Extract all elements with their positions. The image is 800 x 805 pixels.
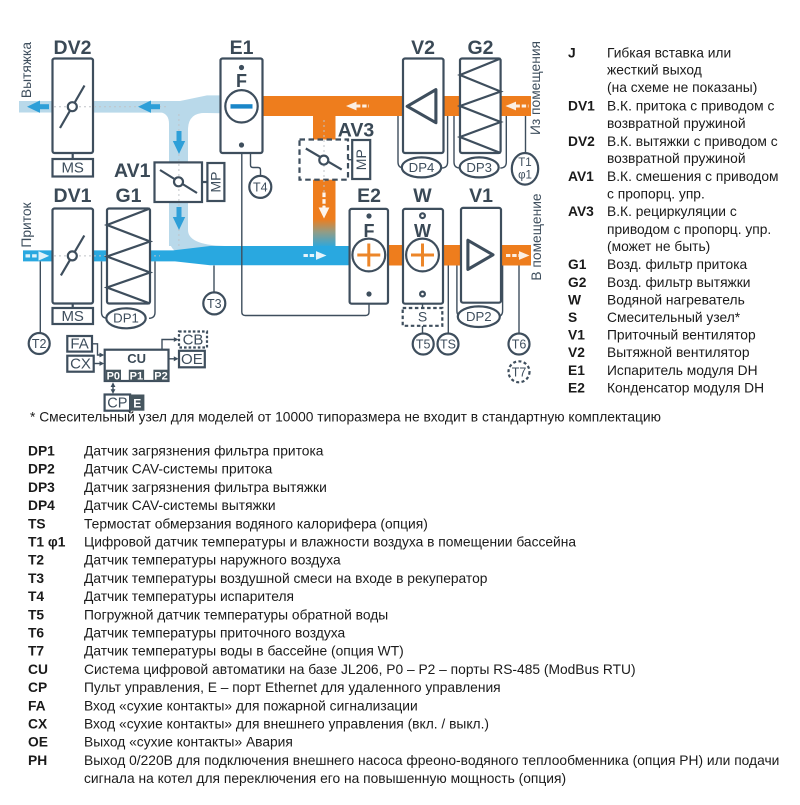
svg-text:T5: T5 <box>416 338 431 352</box>
svg-text:сигнала на котел для переключе: сигнала на котел для переключения его на… <box>84 771 566 786</box>
svg-text:CX: CX <box>28 717 48 732</box>
svg-text:Погружной датчик температуры о: Погружной датчик температуры обратной во… <box>84 607 388 622</box>
svg-text:MP: MP <box>208 172 224 193</box>
svg-text:T2: T2 <box>28 553 44 568</box>
svg-text:DP4: DP4 <box>409 160 435 175</box>
svg-text:DP4: DP4 <box>28 498 55 513</box>
svg-text:DP1: DP1 <box>113 311 139 326</box>
svg-text:T3: T3 <box>28 571 44 586</box>
svg-text:Гибкая вставка или: Гибкая вставка или <box>607 45 731 60</box>
svg-text:Датчик загрязнения фильтра при: Датчик загрязнения фильтра притока <box>84 444 324 459</box>
svg-text:V2: V2 <box>568 345 585 360</box>
svg-text:Выход 0/220В для подключения в: Выход 0/220В для подключения внешнего на… <box>84 753 779 768</box>
svg-text:В.К. притока с приводом с: В.К. притока с приводом с <box>607 99 774 114</box>
svg-text:приводом с пропорц. упр.: приводом с пропорц. упр. <box>607 222 771 237</box>
svg-text:E: E <box>133 396 141 410</box>
svg-text:TS: TS <box>440 338 456 352</box>
svg-text:OE: OE <box>181 351 203 368</box>
svg-text:Возд. фильтр вытяжки: Возд. фильтр вытяжки <box>607 275 751 290</box>
svg-text:P1: P1 <box>130 370 143 382</box>
svg-text:AV3: AV3 <box>568 204 594 219</box>
svg-text:T7: T7 <box>28 644 44 659</box>
svg-text:В.К. смешения с приводом: В.К. смешения с приводом <box>607 169 779 184</box>
svg-text:с пропорц. упр.: с пропорц. упр. <box>607 187 705 202</box>
svg-text:В помещение: В помещение <box>529 193 544 281</box>
svg-text:Пульт управления, Е – порт Eth: Пульт управления, Е – порт Ethernet для … <box>84 680 501 695</box>
svg-text:DV1: DV1 <box>568 99 595 114</box>
svg-text:Возд. фильтр притока: Возд. фильтр притока <box>607 257 748 272</box>
svg-text:P0: P0 <box>107 370 120 382</box>
svg-text:CP: CP <box>28 680 47 695</box>
svg-text:AV1: AV1 <box>114 160 151 182</box>
svg-text:T5: T5 <box>28 607 44 622</box>
svg-text:T2: T2 <box>32 337 47 351</box>
svg-text:S: S <box>418 309 427 325</box>
svg-text:возвратной пружиной: возвратной пружиной <box>607 151 746 166</box>
svg-text:W: W <box>568 292 582 307</box>
svg-text:φ1: φ1 <box>518 170 532 182</box>
svg-text:Датчик температуры воды в басс: Датчик температуры воды в бассейне (опци… <box>84 644 404 659</box>
svg-text:Испаритель модуля DH: Испаритель модуля DH <box>607 363 758 378</box>
svg-text:CB: CB <box>183 332 204 349</box>
svg-text:MP: MP <box>353 149 369 170</box>
svg-text:CU: CU <box>127 351 146 366</box>
svg-text:OE: OE <box>28 735 48 750</box>
svg-text:PH: PH <box>28 753 47 768</box>
svg-text:Смесительный узел*: Смесительный узел* <box>607 310 741 325</box>
svg-text:Приток: Приток <box>19 201 34 247</box>
svg-text:DV1: DV1 <box>54 185 92 207</box>
svg-text:V1: V1 <box>568 328 585 343</box>
svg-text:T6: T6 <box>512 338 527 352</box>
svg-text:(на схеме не показаны): (на схеме не показаны) <box>607 80 757 95</box>
svg-text:T6: T6 <box>28 626 44 641</box>
svg-text:AV3: AV3 <box>338 120 375 142</box>
svg-text:Датчик загрязнения фильтра выт: Датчик загрязнения фильтра вытяжки <box>84 480 327 495</box>
svg-text:жесткий выход: жесткий выход <box>607 63 702 78</box>
svg-text:TS: TS <box>28 516 46 531</box>
svg-text:E1: E1 <box>568 363 585 378</box>
svg-text:DP3: DP3 <box>466 160 492 175</box>
svg-text:AV1: AV1 <box>568 169 594 184</box>
svg-text:MS: MS <box>61 160 84 177</box>
svg-text:Вход «сухие контакты» для пожа: Вход «сухие контакты» для пожарной сигна… <box>84 698 418 713</box>
svg-text:CX: CX <box>70 356 91 373</box>
svg-text:G1: G1 <box>115 185 141 207</box>
svg-text:В.К. вытяжки с приводом с: В.К. вытяжки с приводом с <box>607 134 778 149</box>
svg-text:G2: G2 <box>467 37 493 59</box>
svg-text:T3: T3 <box>207 297 222 311</box>
svg-text:G2: G2 <box>568 275 587 290</box>
svg-text:Приточный вентилятор: Приточный вентилятор <box>607 328 756 343</box>
svg-text:Вытяжной вентилятор: Вытяжной вентилятор <box>607 345 750 360</box>
svg-text:T1 φ1: T1 φ1 <box>28 535 66 550</box>
svg-text:Термостат обмерзания водяного: Термостат обмерзания водяного калорифера… <box>84 516 428 531</box>
svg-text:DP2: DP2 <box>28 462 55 477</box>
svg-text:Выход «сухие контакты» Авария: Выход «сухие контакты» Авария <box>84 735 293 750</box>
svg-text:DP2: DP2 <box>466 309 492 324</box>
svg-text:S: S <box>568 310 577 325</box>
svg-text:E2: E2 <box>357 185 381 207</box>
svg-text:FA: FA <box>70 336 88 353</box>
svg-text:F: F <box>236 71 247 91</box>
svg-text:DV2: DV2 <box>54 37 92 59</box>
svg-text:В.К. рециркуляции с: В.К. рециркуляции с <box>607 204 737 219</box>
svg-text:Датчик температуры наружного в: Датчик температуры наружного воздуха <box>84 553 341 568</box>
svg-text:Датчик температуры испарителя: Датчик температуры испарителя <box>84 589 294 604</box>
svg-text:Вход «сухие контакты» для вне: Вход «сухие контакты» для внешнего управ… <box>84 717 489 732</box>
svg-text:DV2: DV2 <box>568 134 595 149</box>
svg-text:Из помещения: Из помещения <box>528 41 543 135</box>
svg-text:E1: E1 <box>230 37 254 59</box>
svg-text:J: J <box>568 45 576 60</box>
svg-text:Водяной нагреватель: Водяной нагреватель <box>607 292 745 307</box>
svg-text:MS: MS <box>61 308 84 325</box>
svg-text:T1: T1 <box>518 157 531 169</box>
svg-text:CU: CU <box>28 662 48 677</box>
svg-text:DP3: DP3 <box>28 480 55 495</box>
svg-text:W: W <box>413 185 432 207</box>
svg-text:возвратной пружиной: возвратной пружиной <box>607 116 746 131</box>
svg-text:Система цифровой автоматики на: Система цифровой автоматики на базе JL20… <box>84 662 636 677</box>
svg-text:T7: T7 <box>512 365 527 379</box>
svg-text:Вытяжка: Вытяжка <box>19 42 34 98</box>
svg-text:(может не быть): (может не быть) <box>607 239 710 254</box>
svg-text:T4: T4 <box>28 589 44 604</box>
svg-text:DP1: DP1 <box>28 444 55 459</box>
svg-text:* Смесительный узел для моделе: * Смесительный узел для моделей от 10000… <box>30 410 661 425</box>
svg-text:G1: G1 <box>568 257 587 272</box>
svg-text:V1: V1 <box>469 185 493 207</box>
svg-text:E2: E2 <box>568 380 585 395</box>
svg-text:Конденсатор модуля DH: Конденсатор модуля DH <box>607 380 764 395</box>
svg-text:V2: V2 <box>411 37 435 59</box>
svg-text:Цифровой датчик температуры и: Цифровой датчик температуры и влажности … <box>84 535 576 550</box>
svg-text:T4: T4 <box>253 180 268 194</box>
svg-text:Датчик CAV-системы притока: Датчик CAV-системы притока <box>84 462 273 477</box>
svg-text:P2: P2 <box>154 370 167 382</box>
svg-text:FA: FA <box>28 698 46 713</box>
svg-text:Датчик CAV-системы вытяжки: Датчик CAV-системы вытяжки <box>84 498 276 513</box>
svg-text:Датчик температуры воздушной с: Датчик температуры воздушной смеси на вх… <box>84 571 488 586</box>
svg-text:Датчик температуры приточного: Датчик температуры приточного воздуха <box>84 626 345 641</box>
